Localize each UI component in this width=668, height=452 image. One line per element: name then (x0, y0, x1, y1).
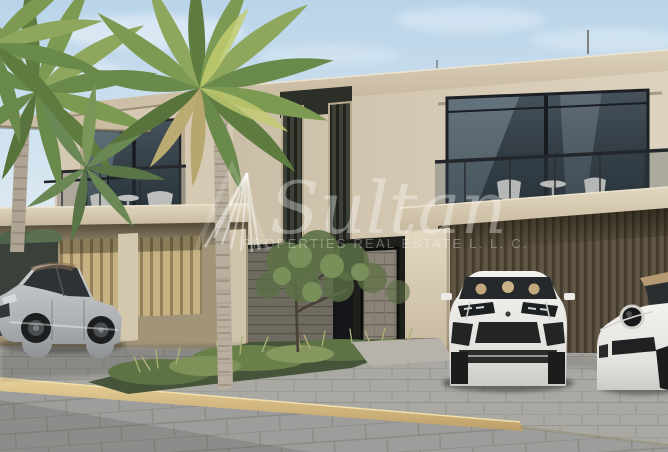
real-estate-listing-photo: Sultan PROPERTIES REAL ESTATE L. L. C. (0, 0, 668, 452)
fog-intake (599, 344, 608, 358)
interior-seat (502, 281, 514, 293)
wheel (451, 352, 468, 384)
side-mirror (564, 293, 575, 300)
hood-badge (505, 311, 510, 316)
wheel (548, 352, 565, 384)
interior-seat (476, 284, 487, 295)
center-grille (475, 322, 541, 343)
side-mirror (441, 293, 452, 300)
interior-seat (529, 284, 540, 295)
watermark-subtitle-text: PROPERTIES REAL ESTATE L. L. C. (242, 236, 529, 251)
